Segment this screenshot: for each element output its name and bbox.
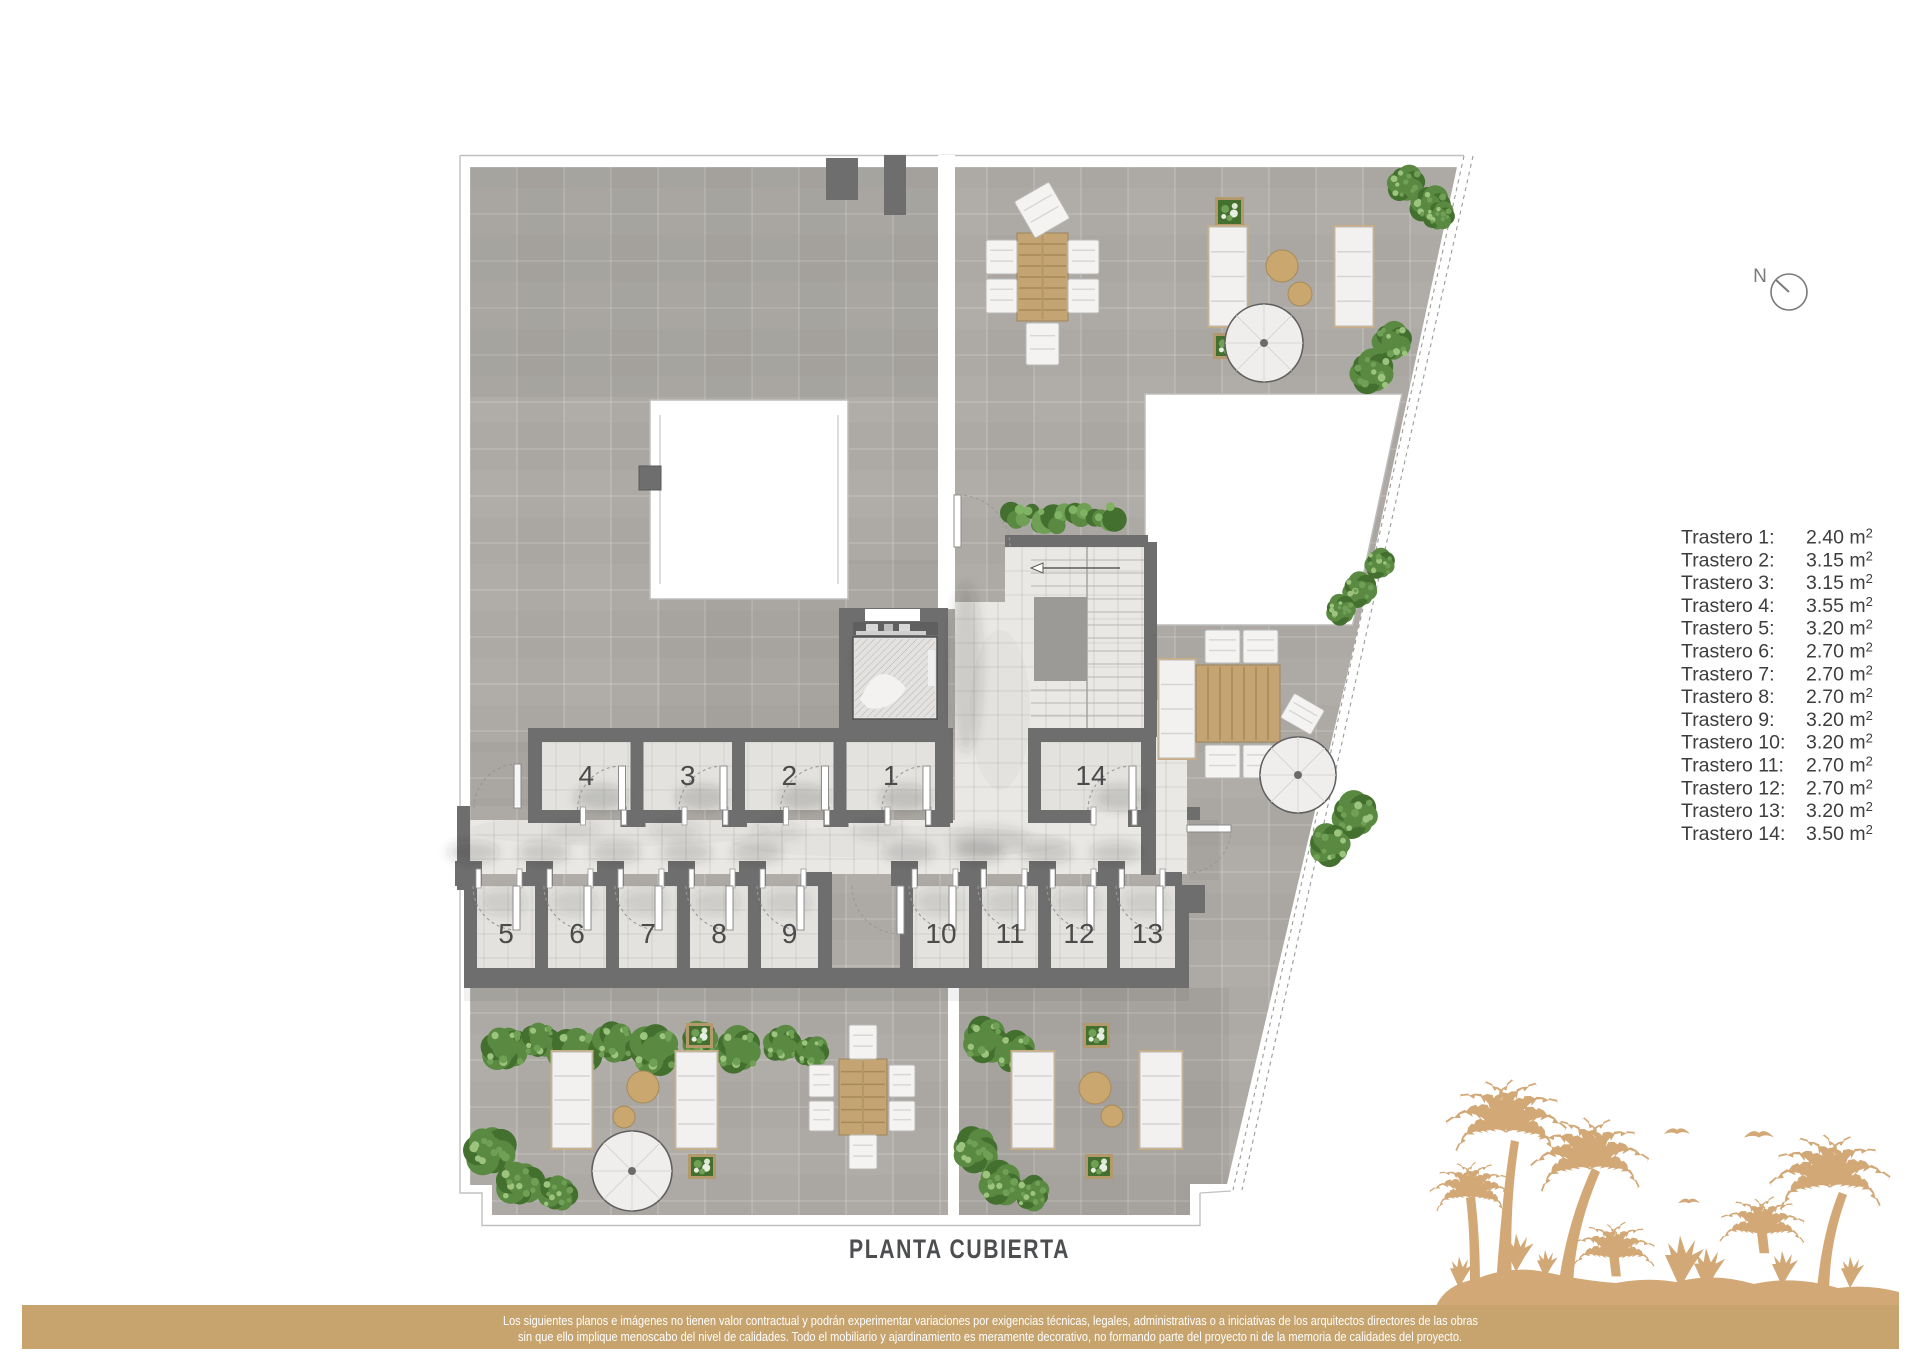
svg-text:10: 10 [925, 918, 956, 949]
svg-text:2.70 m2: 2.70 m2 [1806, 640, 1873, 663]
svg-text:3.15 m2: 3.15 m2 [1806, 548, 1873, 571]
svg-text:Trastero 5:: Trastero 5: [1681, 618, 1775, 640]
svg-text:Trastero 3:: Trastero 3: [1681, 572, 1775, 594]
svg-text:3.20 m2: 3.20 m2 [1806, 617, 1873, 640]
svg-text:8: 8 [711, 918, 727, 949]
svg-text:Trastero 12:: Trastero 12: [1681, 777, 1785, 799]
svg-text:Trastero 10:: Trastero 10: [1681, 732, 1785, 754]
svg-text:Trastero 11:: Trastero 11: [1681, 755, 1784, 777]
svg-text:13: 13 [1132, 918, 1163, 949]
svg-text:Trastero 2:: Trastero 2: [1681, 549, 1775, 571]
svg-text:3.55 m2: 3.55 m2 [1806, 594, 1873, 617]
svg-text:3.20 m2: 3.20 m2 [1806, 799, 1873, 822]
svg-text:PLANTA CUBIERTA: PLANTA CUBIERTA [849, 1234, 1070, 1264]
svg-text:7: 7 [640, 918, 656, 949]
svg-text:Trastero 14:: Trastero 14: [1681, 823, 1785, 845]
svg-text:3.20 m2: 3.20 m2 [1806, 708, 1873, 731]
svg-text:Trastero 13:: Trastero 13: [1681, 800, 1785, 822]
svg-text:3: 3 [680, 760, 696, 791]
svg-text:11: 11 [995, 918, 1024, 949]
svg-text:2.70 m2: 2.70 m2 [1806, 685, 1873, 708]
svg-text:Trastero 9:: Trastero 9: [1681, 709, 1775, 731]
svg-text:12: 12 [1063, 918, 1094, 949]
svg-text:2.70 m2: 2.70 m2 [1806, 754, 1873, 777]
svg-text:Trastero 7:: Trastero 7: [1681, 663, 1775, 685]
svg-text:Trastero 6:: Trastero 6: [1681, 641, 1775, 663]
svg-text:9: 9 [782, 918, 798, 949]
svg-text:5: 5 [498, 918, 514, 949]
svg-text:Los siguientes planos e imágen: Los siguientes planos e imágenes no tien… [503, 1314, 1478, 1328]
svg-text:2.70 m2: 2.70 m2 [1806, 776, 1873, 799]
svg-text:Trastero 4:: Trastero 4: [1681, 595, 1775, 617]
svg-text:4: 4 [578, 760, 594, 791]
svg-text:Trastero 1:: Trastero 1: [1681, 527, 1775, 549]
svg-text:2.70 m2: 2.70 m2 [1806, 662, 1873, 685]
svg-text:Trastero 8:: Trastero 8: [1681, 686, 1775, 708]
svg-text:2.40 m2: 2.40 m2 [1806, 526, 1873, 549]
svg-text:3.50 m2: 3.50 m2 [1806, 822, 1873, 845]
svg-text:3.15 m2: 3.15 m2 [1806, 571, 1873, 594]
svg-text:N: N [1753, 266, 1767, 287]
svg-text:1: 1 [883, 760, 899, 791]
svg-text:3.20 m2: 3.20 m2 [1806, 731, 1873, 754]
svg-text:sin que ello implique menoscab: sin que ello implique menoscabo del nive… [518, 1330, 1462, 1344]
svg-text:6: 6 [569, 918, 585, 949]
svg-text:2: 2 [781, 760, 797, 791]
svg-text:14: 14 [1075, 760, 1106, 791]
